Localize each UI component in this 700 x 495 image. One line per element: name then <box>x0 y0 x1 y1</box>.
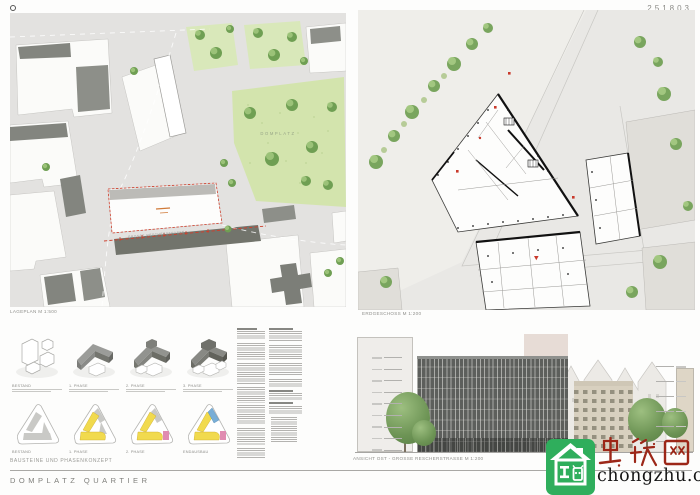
paragraph-lines <box>269 379 302 388</box>
bullet-list-lines <box>271 417 297 443</box>
axon-cell-phase3: 3. PHASE <box>183 330 233 392</box>
level-mark <box>372 426 404 428</box>
phase-plan-phase2 <box>126 400 176 448</box>
elevation-caption: ANSICHT OST - GROSSE RESCHERSTRASSE M 1:… <box>353 456 483 461</box>
paragraph-lines <box>269 406 302 415</box>
axon-subcaption-line <box>69 389 119 390</box>
paragraph-lines <box>269 331 302 342</box>
axon-cell-phase1: 1. PHASE <box>69 330 119 392</box>
axon-subcaption-line <box>183 391 222 392</box>
paragraph-lines <box>269 393 302 400</box>
level-mark <box>372 415 404 417</box>
phasing-section-label: BAUSTEINE UND PHASENKONZEPT <box>10 458 112 464</box>
plan-cell-phase1: 1. PHASE <box>69 400 119 454</box>
plan-label: 2. PHASE <box>126 450 176 454</box>
axon-subcaption-line <box>126 389 176 390</box>
level-mark <box>372 438 404 440</box>
paragraph-heading <box>269 328 293 330</box>
level-marks-left <box>372 357 404 451</box>
axon-subcaption-line <box>12 389 62 390</box>
siteplan-map: DOMPLATZ GROSSE RESCHERSTRASSE <box>10 13 346 307</box>
level-mark <box>372 392 404 394</box>
siteplan-caption: LAGEPLAN M 1:500 <box>10 309 57 314</box>
chongzhu-logo[interactable] <box>546 439 595 495</box>
axon-diagram-bestand <box>12 330 62 382</box>
plan-label: 1. PHASE <box>69 450 119 454</box>
axon-cell-bestand: BESTAND <box>12 330 62 392</box>
axon-label: 1. PHASE <box>69 384 119 388</box>
paragraph-heading <box>237 328 257 330</box>
floorplan-caption: ERDGESCHOSS M 1:200 <box>362 311 421 316</box>
level-mark <box>372 369 404 371</box>
floorplan-drawing <box>358 10 695 310</box>
text-column-2 <box>269 326 302 464</box>
axon-subcaption-line <box>69 391 108 392</box>
level-mark <box>656 426 688 428</box>
text-column-1 <box>237 326 265 464</box>
paragraph-lines <box>237 331 265 340</box>
floorplan-panel: ERDGESCHOSS M 1:200 <box>358 10 695 310</box>
axon-subcaption-line <box>183 389 233 390</box>
plan-cell-endausbau: ENDAUSBAU <box>183 400 233 454</box>
axon-cell-phase2: 2. PHASE <box>126 330 176 392</box>
park-label: DOMPLATZ <box>260 131 295 136</box>
level-mark <box>656 366 688 368</box>
main-building-parapet <box>417 356 568 359</box>
neighbor-building-parapet <box>574 381 633 386</box>
cjk-char-zhu <box>631 439 656 465</box>
chongzhu-domain[interactable]: chongzhu.cn <box>597 466 700 486</box>
phase-plan-bestand <box>12 400 62 448</box>
paragraph-lines <box>269 363 302 376</box>
axon-diagram-phase3 <box>183 330 233 382</box>
building-2 <box>476 232 590 310</box>
plan-cell-bestand: BESTAND <box>12 400 62 454</box>
plan-label: ENDAUSBAU <box>183 450 233 454</box>
axon-diagram-row: BESTAND 1. PHASE 2. PHASE <box>12 330 233 392</box>
axon-subcaption-line <box>126 391 165 392</box>
paragraph-heading <box>269 402 293 404</box>
paragraph-lines <box>237 387 265 402</box>
axon-label: 3. PHASE <box>183 384 233 388</box>
axon-label: 2. PHASE <box>126 384 176 388</box>
level-mark <box>372 357 404 359</box>
plan-cell-phase2: 2. PHASE <box>126 400 176 454</box>
cjk-char-chong <box>600 438 620 467</box>
elevation-tree <box>412 420 436 446</box>
level-mark <box>656 381 688 383</box>
phase-plan-row: BESTAND 1. PHASE 2. PHASE ENDAUSBAU <box>12 400 233 454</box>
axon-subcaption-line <box>12 391 51 392</box>
siteplan-panel: DOMPLATZ GROSSE RESCHERSTRASSE LAGEPLAN … <box>10 13 346 307</box>
paragraph-lines <box>237 405 265 425</box>
phase-plan-phase1 <box>69 400 119 448</box>
plan-label: BESTAND <box>12 450 62 454</box>
phase-plan-endausbau <box>183 400 233 448</box>
axon-diagram-phase1 <box>69 330 119 382</box>
competition-board: { "page": { "code": "251803", "project_t… <box>0 0 700 495</box>
cjk-char-wang <box>665 441 688 464</box>
paragraph-lines <box>237 343 265 361</box>
level-marks-right <box>656 366 688 442</box>
level-mark <box>656 396 688 398</box>
axon-diagram-phase2 <box>126 330 176 382</box>
paragraph-lines <box>237 428 265 446</box>
level-mark <box>372 449 404 451</box>
paragraph-lines <box>237 448 265 459</box>
paragraph-lines <box>269 345 302 360</box>
paragraph-lines <box>237 363 265 385</box>
level-mark <box>372 403 404 405</box>
project-title: DOMPLATZ QUARTIER <box>10 476 150 485</box>
axon-label: BESTAND <box>12 384 62 388</box>
level-mark <box>656 411 688 413</box>
north-marker-icon <box>10 5 16 11</box>
paragraph-heading <box>269 390 293 392</box>
level-mark <box>372 380 404 382</box>
